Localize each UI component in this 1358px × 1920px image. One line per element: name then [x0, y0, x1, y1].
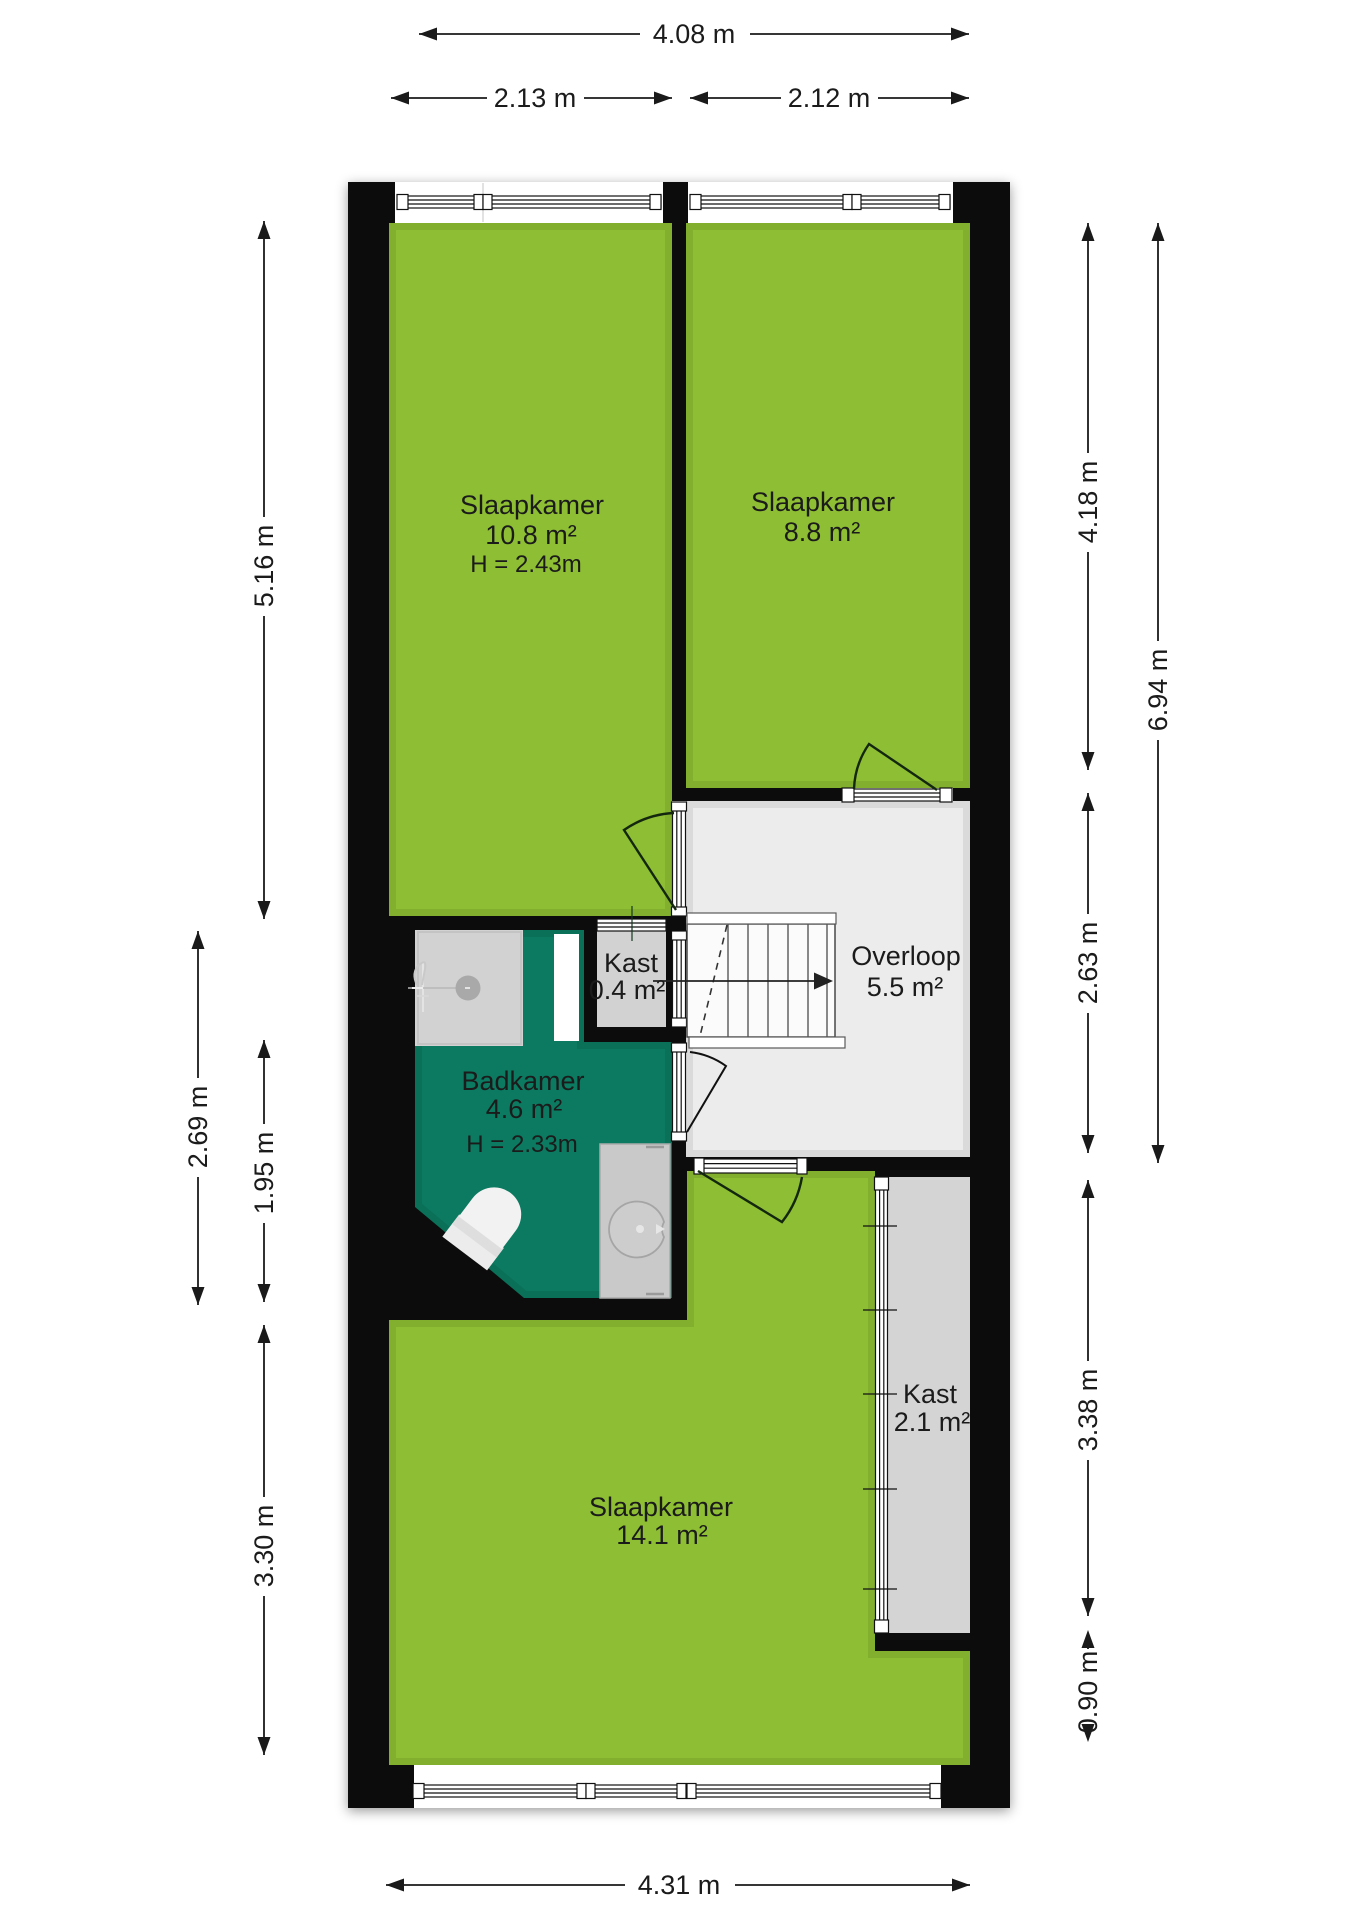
svg-text:10.8 m²: 10.8 m² — [485, 520, 577, 550]
svg-text:2.12 m: 2.12 m — [788, 83, 871, 113]
svg-text:6.94 m: 6.94 m — [1143, 649, 1173, 732]
svg-text:4.08 m: 4.08 m — [653, 19, 736, 49]
svg-text:Slaapkamer: Slaapkamer — [751, 487, 895, 517]
svg-text:Badkamer: Badkamer — [461, 1066, 584, 1096]
svg-text:1.95 m: 1.95 m — [249, 1132, 279, 1215]
svg-text:Kast: Kast — [604, 948, 659, 978]
svg-text:5.5 m²: 5.5 m² — [867, 972, 944, 1002]
svg-text:4.18 m: 4.18 m — [1073, 461, 1103, 544]
svg-text:Kast: Kast — [903, 1379, 958, 1409]
svg-text:2.13 m: 2.13 m — [494, 83, 577, 113]
svg-text:8.8 m²: 8.8 m² — [784, 517, 861, 547]
svg-text:2.1 m²: 2.1 m² — [894, 1407, 971, 1437]
svg-text:2.69 m: 2.69 m — [183, 1086, 213, 1169]
svg-text:4.31 m: 4.31 m — [638, 1870, 721, 1900]
svg-text:4.6 m²: 4.6 m² — [486, 1094, 563, 1124]
svg-text:3.38 m: 3.38 m — [1073, 1369, 1103, 1452]
svg-text:H = 2.43m: H = 2.43m — [470, 551, 581, 578]
svg-text:14.1 m²: 14.1 m² — [616, 1520, 708, 1550]
svg-text:Slaapkamer: Slaapkamer — [460, 490, 604, 520]
svg-text:3.30 m: 3.30 m — [249, 1505, 279, 1588]
svg-text:Slaapkamer: Slaapkamer — [589, 1492, 733, 1522]
svg-text:5.16 m: 5.16 m — [249, 525, 279, 608]
svg-text:2.63 m: 2.63 m — [1073, 922, 1103, 1005]
svg-text:Overloop: Overloop — [851, 941, 961, 971]
svg-text:0.4 m²: 0.4 m² — [589, 975, 666, 1005]
svg-text:H = 2.33m: H = 2.33m — [466, 1131, 577, 1158]
svg-text:0.90 m: 0.90 m — [1073, 1651, 1103, 1734]
